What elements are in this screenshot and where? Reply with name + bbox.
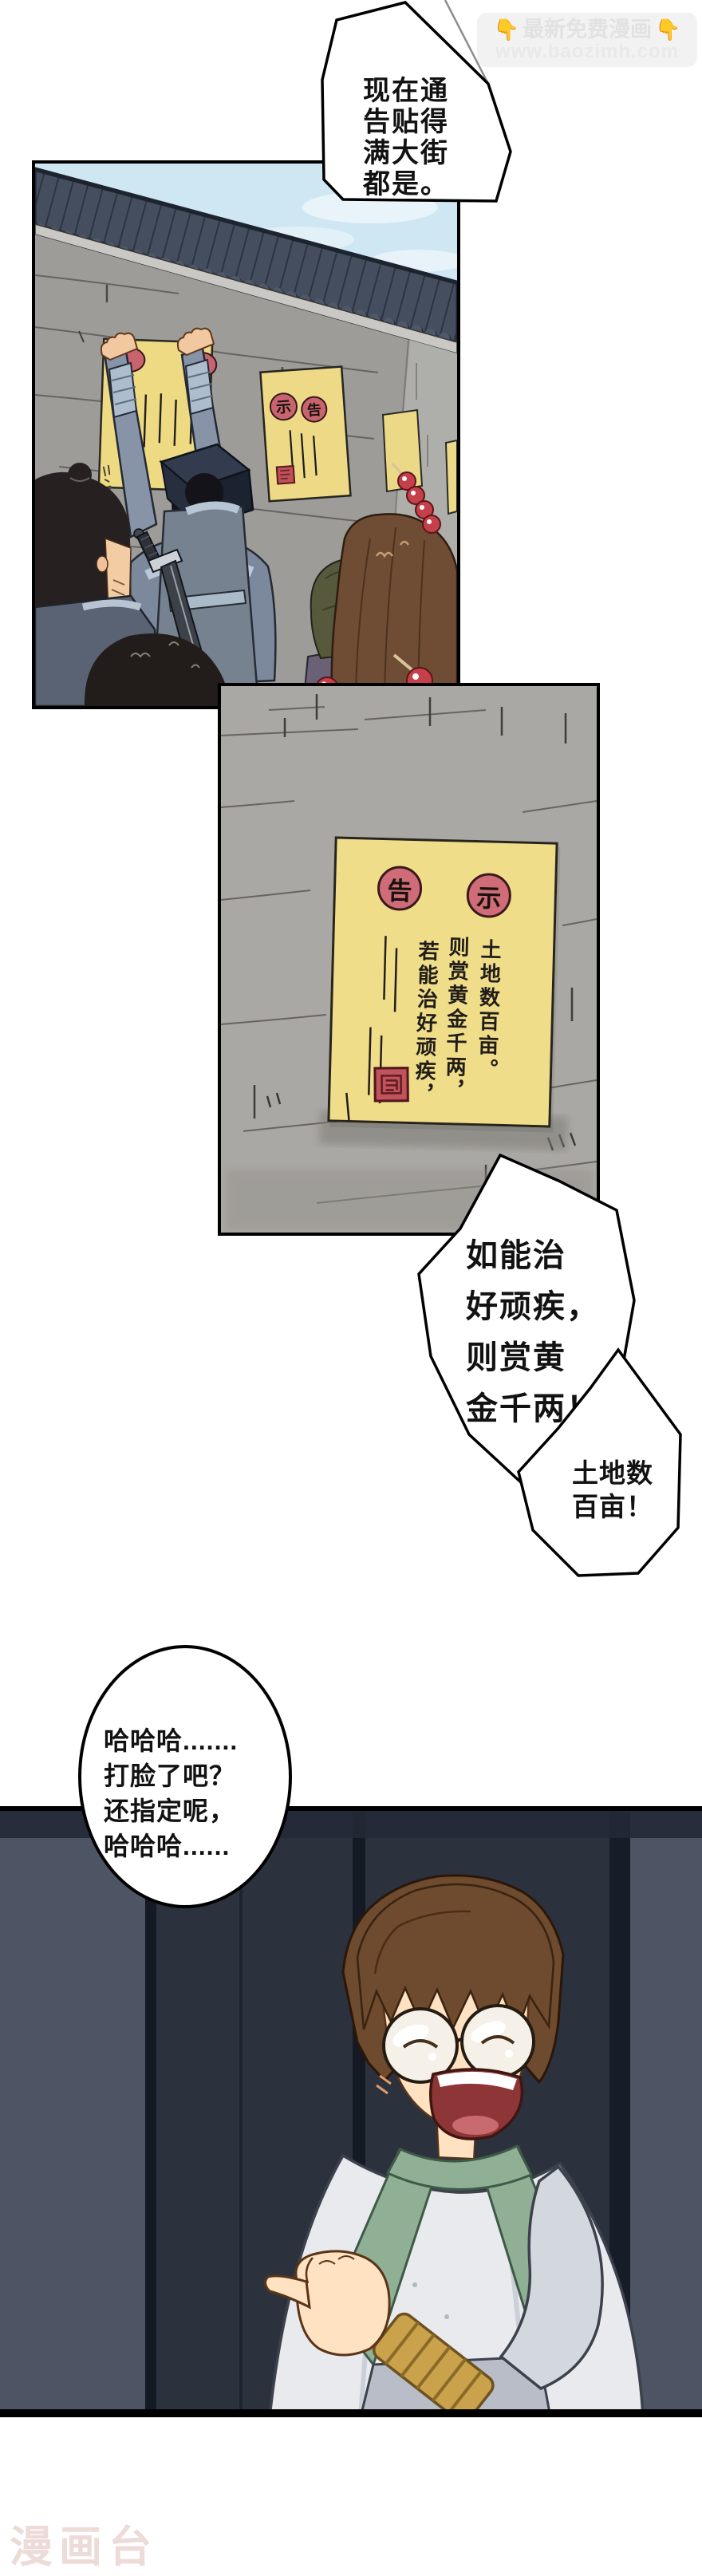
door-column bbox=[0, 1806, 145, 2417]
seal-char: 示 bbox=[275, 399, 291, 416]
laughing-man-art bbox=[0, 1806, 702, 2417]
posted-notice-blank bbox=[446, 440, 457, 514]
speech-bubble-3-text: 土地数 百亩！ bbox=[565, 1457, 661, 1524]
red-square-seal bbox=[373, 1067, 408, 1102]
panel-street-scene: 示 告 告 bbox=[32, 160, 460, 709]
comic-page: 👇 最新免费漫画 👇 www.baozimh.com bbox=[0, 0, 702, 2576]
seal-glyph bbox=[376, 1069, 406, 1099]
speech-bubble-4-text: 哈哈哈....... 打脸了吧？ 还指定呢， 哈哈哈...... bbox=[104, 1723, 238, 1864]
notice-marks bbox=[329, 838, 560, 1130]
seal-char: 告 bbox=[306, 400, 321, 418]
watermark-title-row: 👇 最新免费漫画 👇 bbox=[494, 18, 681, 41]
street-scene-art: 示 告 告 bbox=[35, 164, 457, 706]
notice-poster: 告 示 土地数百亩。 则赏黄金千两， 若能治好顽疾， bbox=[327, 836, 558, 1127]
small-notice: 示 告 bbox=[260, 367, 350, 502]
hair-bangs bbox=[357, 1884, 554, 2031]
watermark-title: 最新免费漫画 bbox=[523, 18, 652, 41]
panel-laughing-man bbox=[0, 1806, 702, 2417]
door-column bbox=[630, 1806, 702, 2417]
point-down-icon: 👇 bbox=[655, 18, 680, 41]
speech-bubble-1-text: 现在通 告贴得 满大街 都是。 bbox=[363, 76, 449, 200]
watermark-url: www.baozimh.com bbox=[495, 41, 679, 62]
tongue bbox=[452, 2115, 499, 2136]
manhuatai-watermark: 漫画台 bbox=[10, 2511, 158, 2574]
